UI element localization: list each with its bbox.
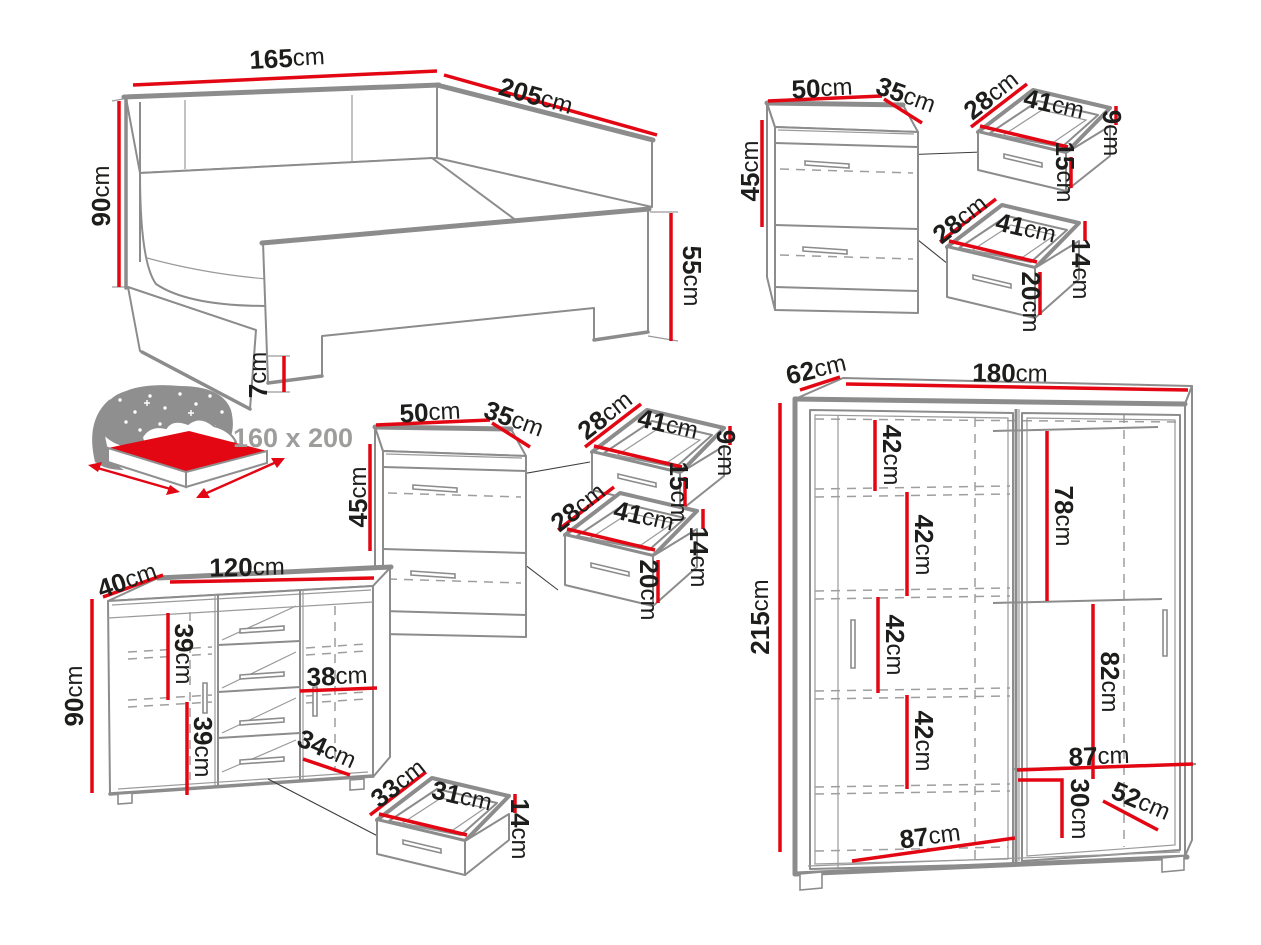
- furniture-dimension-sheet: 165cm 205cm 90cm 55cm 7cm 160 x 200: [0, 0, 1261, 945]
- wardrobe-shoe-height-label: 30cm: [1065, 779, 1095, 840]
- drawer-front-height-label: 20cm: [634, 560, 664, 621]
- mattress-size-label: 160 x 200: [233, 423, 353, 453]
- bed-leg-height-label: 7cm: [243, 352, 273, 398]
- wardrobe-height-label: 215cm: [745, 579, 775, 654]
- bed-footboard-height-label: 55cm: [677, 246, 707, 307]
- wardrobe-width-label: 180cm: [972, 357, 1048, 388]
- drawer-back-height-label: 14cm: [684, 527, 714, 588]
- wardrobe-right-upper-label: 78cm: [1049, 486, 1079, 547]
- wardrobe-shelf-gap-label: 42cm: [880, 615, 910, 676]
- wardrobe-right-lower-label: 82cm: [1095, 652, 1125, 713]
- nightstand-middle-width-label: 50cm: [399, 395, 461, 428]
- wardrobe-right-width-label: 87cm: [1068, 740, 1130, 772]
- dresser-lower-section-label: 39cm: [188, 717, 218, 778]
- dresser-height-label: 90cm: [59, 666, 89, 727]
- mattress-size-icon: 160 x 200: [88, 385, 353, 498]
- diagram-canvas: 165cm 205cm 90cm 55cm 7cm 160 x 200: [0, 0, 1261, 945]
- drawer-front-height-label: 15cm: [1050, 142, 1080, 203]
- nightstand-top-height-label: 45cm: [735, 141, 765, 202]
- drawer-back-height-label: 14cm: [1066, 239, 1096, 300]
- bed-headboard-height-label: 90cm: [86, 166, 116, 227]
- bed-width-label: 165cm: [249, 41, 326, 75]
- dresser-right-section-label: 38cm: [306, 660, 368, 692]
- drawer-back-height-label: 9cm: [711, 430, 741, 476]
- nightstand-middle-height-label: 45cm: [343, 467, 373, 528]
- wardrobe-shelf-gap-label: 42cm: [909, 711, 939, 772]
- dresser-width-label: 120cm: [209, 551, 285, 582]
- wardrobe-shelf-gap-label: 42cm: [877, 425, 907, 486]
- dresser-drawer-height-label: 14cm: [505, 799, 535, 860]
- wardrobe-shelf-gap-label: 42cm: [909, 515, 939, 576]
- dresser-upper-section-label: 39cm: [169, 624, 199, 685]
- drawer-back-height-label: 9cm: [1097, 110, 1127, 156]
- nightstand-top-width-label: 50cm: [791, 71, 853, 104]
- drawer-front-height-label: 20cm: [1016, 272, 1046, 333]
- bed-drawing: [112, 85, 678, 409]
